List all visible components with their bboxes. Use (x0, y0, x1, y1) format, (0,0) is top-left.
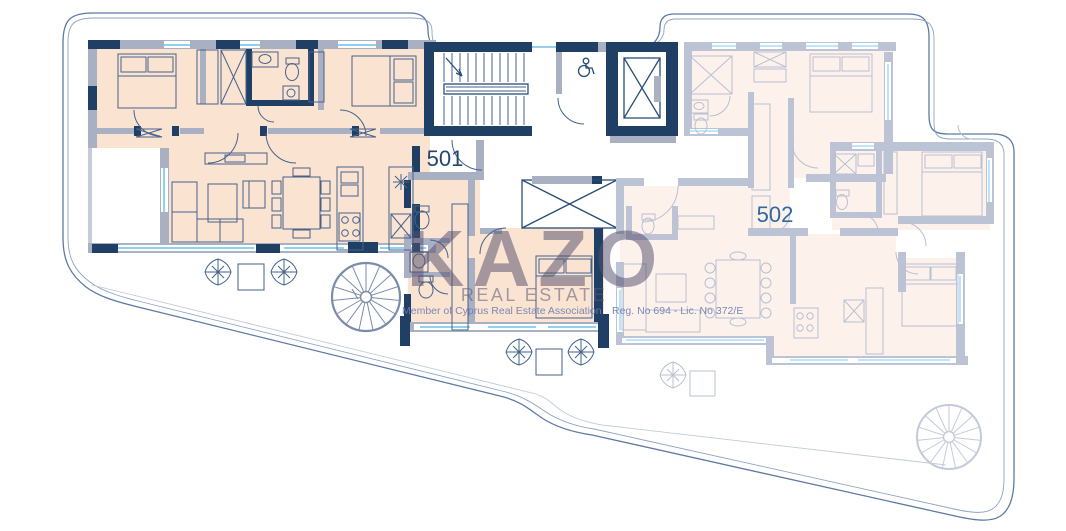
floor-plan-page: 501 502 KAZO REAL ESTATE Member of Cypru… (0, 0, 1066, 531)
wheelchair-icon (579, 58, 595, 76)
watermark-tagline: REAL ESTATE (461, 285, 607, 305)
floor-plan-canvas: 501 502 KAZO REAL ESTATE Member of Cypru… (0, 0, 1066, 531)
terrace-chair-icon (568, 339, 594, 365)
terrace-chair-icon (271, 259, 297, 285)
terrace-table (690, 371, 715, 396)
unit-501-label: 501 (427, 146, 464, 171)
terrace-table (238, 264, 264, 290)
spiral-staircase-501 (332, 263, 400, 331)
unit-502-label: 502 (757, 202, 794, 227)
lobby (532, 52, 594, 184)
terrace-table (536, 349, 562, 375)
terrace-furniture-502 (660, 362, 715, 396)
terrace-chair-icon (506, 339, 532, 365)
terrace-chair-icon (205, 259, 231, 285)
spiral-staircase-502 (917, 405, 981, 469)
elevator (606, 42, 678, 143)
watermark-license: Reg. No 694 - Lic. No 372/E (612, 305, 743, 317)
watermark-membership: Member of Cyprus Real Estate Association (402, 305, 602, 317)
terrace-chair-icon (660, 362, 686, 388)
stair-treads (444, 53, 528, 125)
